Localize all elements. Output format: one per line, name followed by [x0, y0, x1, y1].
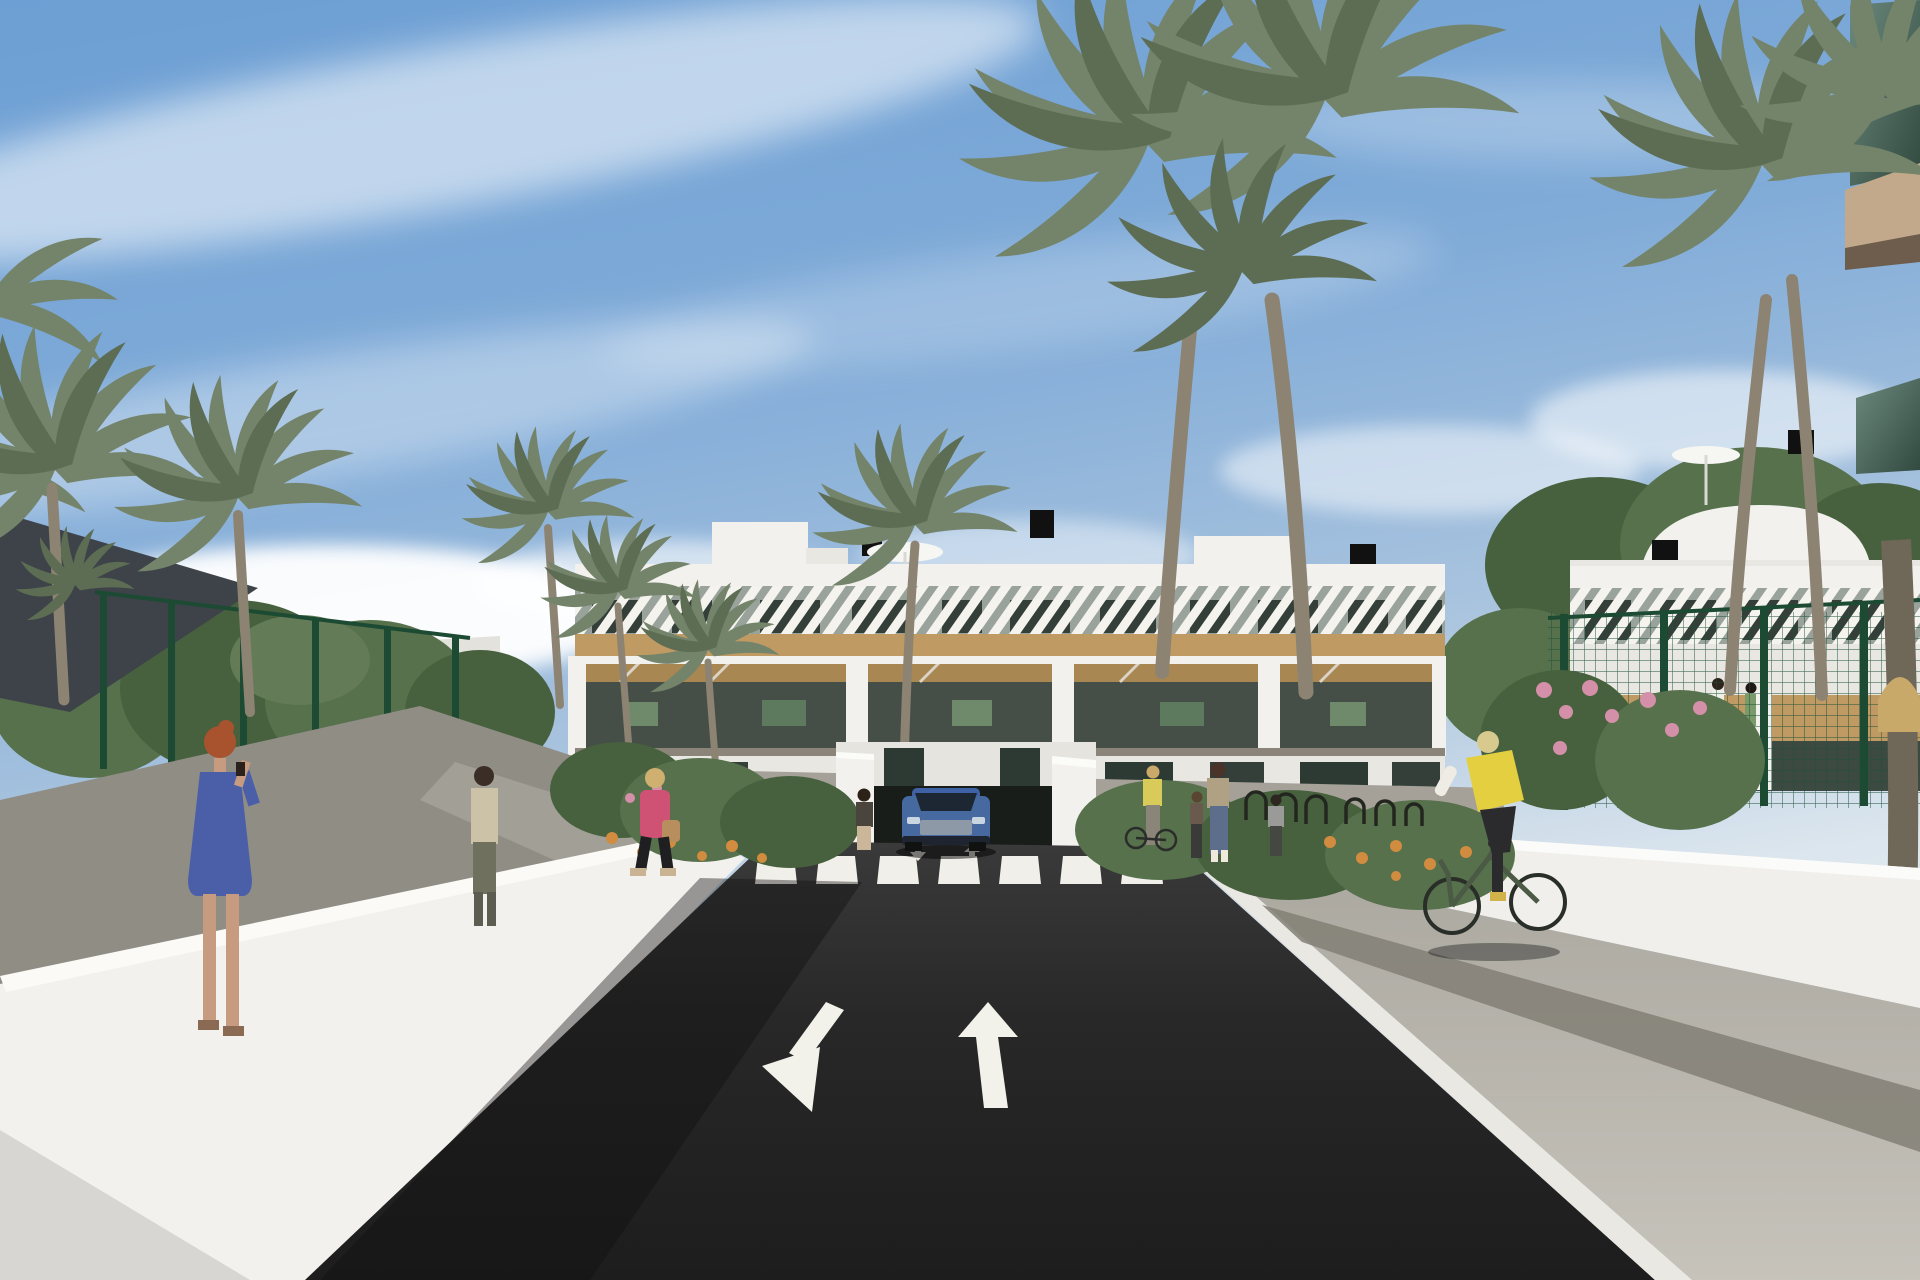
architectural-render-scene: [0, 0, 1920, 1280]
render-canvas: [0, 0, 1920, 1280]
balcony-column: [1432, 656, 1446, 756]
leg: [203, 894, 216, 1024]
chimney: [1350, 544, 1376, 564]
wheel: [969, 842, 986, 851]
parapet: [575, 564, 1445, 586]
shoe: [660, 868, 676, 876]
leg: [1492, 850, 1503, 894]
balcony-column: [568, 656, 586, 756]
blonde-hair: [645, 768, 665, 788]
phone: [236, 762, 245, 776]
windshield: [915, 793, 977, 811]
balcony-column: [1258, 656, 1280, 756]
child-head: [1192, 792, 1203, 803]
headlight: [972, 817, 985, 824]
shoe: [198, 1020, 219, 1030]
shoe: [1490, 892, 1506, 901]
wheel: [905, 842, 922, 851]
chimney: [1652, 540, 1678, 562]
shoe: [630, 868, 646, 876]
balcony-column: [1052, 656, 1074, 756]
child-legs: [1191, 824, 1202, 858]
chimney: [1030, 510, 1054, 538]
shoe: [223, 1026, 244, 1036]
headlight: [907, 817, 920, 824]
leg: [226, 894, 239, 1030]
blonde-hair: [1477, 731, 1499, 753]
grille: [920, 820, 972, 835]
bike-shadow: [1428, 943, 1560, 961]
balcony-column: [846, 656, 868, 756]
blue-suv: [896, 788, 996, 859]
child-top: [1190, 803, 1203, 825]
